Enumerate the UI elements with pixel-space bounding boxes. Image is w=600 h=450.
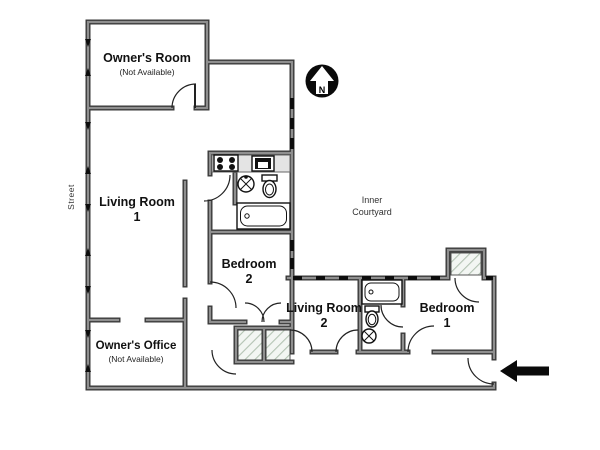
svg-text:Courtyard: Courtyard xyxy=(352,207,392,217)
svg-text:Living Room: Living Room xyxy=(286,301,362,315)
street-label: Street xyxy=(66,184,76,210)
kitchen-sink-icon xyxy=(252,156,274,171)
washbasin-icon xyxy=(362,329,376,343)
svg-text:Living Room: Living Room xyxy=(99,195,175,209)
svg-text:Bedroom: Bedroom xyxy=(222,257,277,271)
closet-hatch xyxy=(238,330,262,360)
svg-text:2: 2 xyxy=(246,272,253,286)
bathtub-icon xyxy=(237,203,290,229)
north-compass-icon: N xyxy=(306,65,339,98)
svg-text:(Not Available): (Not Available) xyxy=(119,67,174,77)
floor-plan: N Owner's Room (Not Available) Living Ro… xyxy=(0,0,600,450)
toilet-icon xyxy=(365,306,379,327)
bathtub-icon xyxy=(362,280,402,304)
closet-hatch xyxy=(266,330,290,360)
bay-window-hatch xyxy=(451,253,481,275)
svg-text:(Not Available): (Not Available) xyxy=(108,354,163,364)
svg-text:2: 2 xyxy=(321,316,328,330)
svg-text:1: 1 xyxy=(444,316,451,330)
compass-n-label: N xyxy=(319,85,326,95)
svg-text:Bedroom: Bedroom xyxy=(420,301,475,315)
svg-text:Owner's Room: Owner's Room xyxy=(103,51,191,65)
toilet-icon xyxy=(262,175,277,198)
svg-text:Inner: Inner xyxy=(362,195,383,205)
svg-text:Owner's Office: Owner's Office xyxy=(96,340,177,352)
washbasin-icon xyxy=(238,175,254,192)
stove-icon xyxy=(214,155,238,171)
floor-plan-page: N Owner's Room (Not Available) Living Ro… xyxy=(0,0,600,450)
svg-text:1: 1 xyxy=(134,210,141,224)
